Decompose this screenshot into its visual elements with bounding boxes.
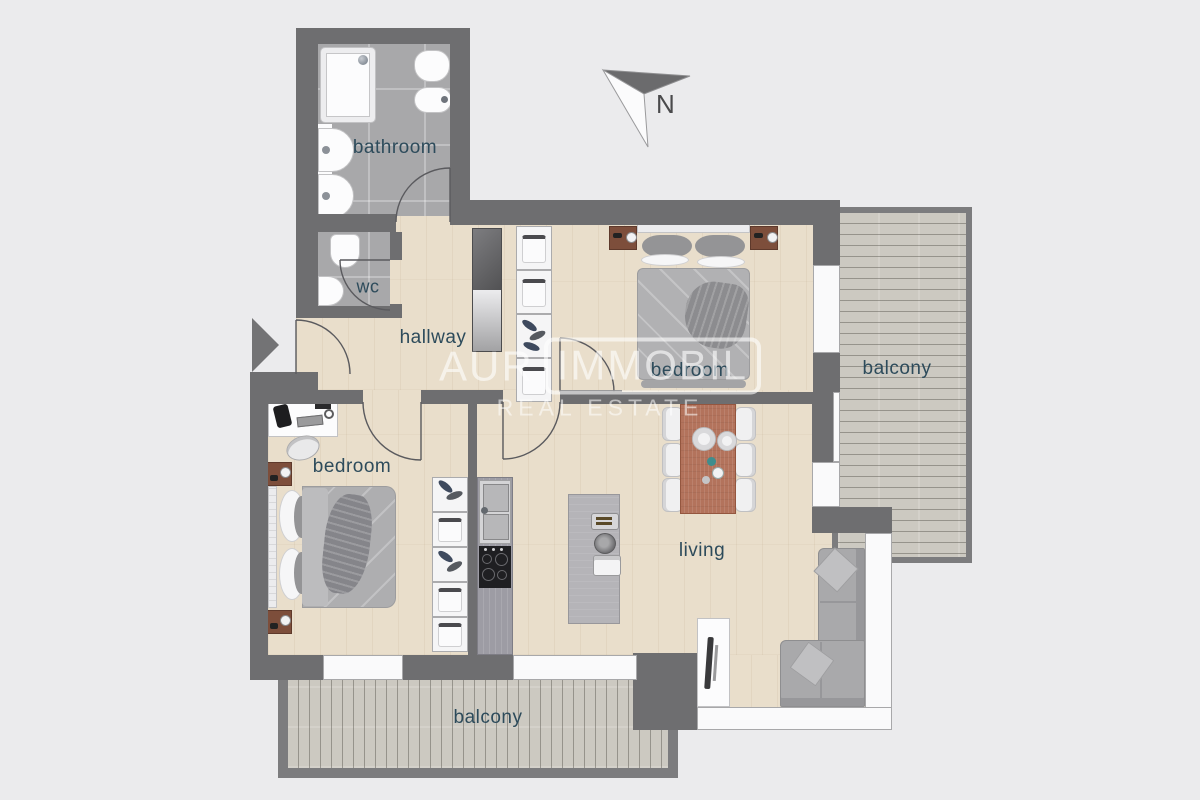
nightstand xyxy=(266,610,292,634)
kitchen-counter xyxy=(477,477,513,655)
wall-segment xyxy=(813,225,840,265)
kettle xyxy=(594,533,616,554)
tv-sideboard xyxy=(697,618,730,707)
wc-toilet xyxy=(330,234,360,268)
kitchen-island xyxy=(568,494,620,624)
coffee-machine xyxy=(593,555,621,576)
living-label: living xyxy=(679,540,725,562)
nightstand xyxy=(609,226,637,250)
headboard xyxy=(268,486,277,608)
window-band xyxy=(323,655,403,680)
headboard xyxy=(637,224,750,233)
north-label: N xyxy=(656,89,675,119)
window-band xyxy=(513,655,637,680)
wall-segment xyxy=(318,214,396,232)
wardrobe-cell-shoes xyxy=(432,477,468,512)
wall-segment xyxy=(421,390,503,404)
bathroom-label: bathroom xyxy=(353,137,437,159)
wardrobe-cell-shoes xyxy=(516,314,552,358)
sink-2-tap xyxy=(322,192,330,200)
dining-table xyxy=(680,404,736,514)
window-band xyxy=(833,392,840,462)
shower-drain xyxy=(358,55,368,65)
wardrobe-cell-clothes xyxy=(516,226,552,270)
wall-segment xyxy=(296,28,318,232)
bedroom-left-label: bedroom xyxy=(313,456,392,478)
wall-segment xyxy=(268,390,363,404)
wall-segment xyxy=(296,232,318,318)
wardrobe-cell-clothes xyxy=(432,617,468,652)
window-band xyxy=(697,707,892,730)
wall-segment xyxy=(390,232,402,260)
wall-segment xyxy=(622,392,813,404)
bedroom-top-label: bedroom xyxy=(651,360,730,382)
balcony-bottom-deck xyxy=(278,680,678,778)
window-band xyxy=(812,462,840,507)
entrance-arrow-icon xyxy=(252,318,279,372)
wall-segment xyxy=(813,353,840,392)
dining-chair xyxy=(735,478,756,512)
wall-segment xyxy=(460,200,840,225)
wall-segment xyxy=(812,392,833,462)
wardrobe-cell-shoes xyxy=(432,547,468,582)
wall-segment xyxy=(250,655,323,680)
wall-segment xyxy=(468,390,477,655)
window-band xyxy=(813,265,840,353)
wardrobe-cell-clothes xyxy=(432,512,468,547)
wall-segment xyxy=(296,28,470,44)
wall-segment xyxy=(637,655,673,680)
wall-segment xyxy=(450,28,470,225)
hallway-label: hallway xyxy=(400,327,467,349)
wc-label: wc xyxy=(357,277,380,298)
cabinet-upper-door xyxy=(473,229,501,290)
kitchen-sink xyxy=(479,480,511,544)
wall-segment xyxy=(812,507,892,533)
north-arrow-icon: N xyxy=(592,58,712,158)
hallway-cabinet xyxy=(472,228,502,352)
wall-segment xyxy=(560,390,622,404)
desk xyxy=(268,400,338,437)
bathroom-toilet xyxy=(414,50,450,82)
sink-1-tap xyxy=(322,146,330,154)
toaster xyxy=(591,513,619,530)
cooktop xyxy=(479,546,511,588)
balcony-right-label: balcony xyxy=(863,358,932,380)
wall-segment xyxy=(250,372,268,665)
tv xyxy=(704,637,714,689)
floor-plan: bathroom wc hallway bedroom balcony bedr… xyxy=(0,0,1200,800)
wardrobe-cell-clothes xyxy=(516,358,552,402)
wall-segment xyxy=(390,304,402,318)
window-band xyxy=(865,533,892,710)
nightstand xyxy=(750,226,778,250)
wall-segment xyxy=(403,655,513,680)
double-bed xyxy=(268,486,396,608)
dining-chair xyxy=(735,443,756,477)
wardrobe-cell-clothes xyxy=(516,270,552,314)
balcony-bottom-label: balcony xyxy=(454,707,523,729)
bidet-tap xyxy=(441,96,448,103)
nightstand xyxy=(266,462,292,486)
wall-segment xyxy=(318,306,390,318)
wardrobe-cell-clothes xyxy=(432,582,468,617)
dining-chair xyxy=(735,407,756,441)
cabinet-lower-door xyxy=(473,290,501,351)
